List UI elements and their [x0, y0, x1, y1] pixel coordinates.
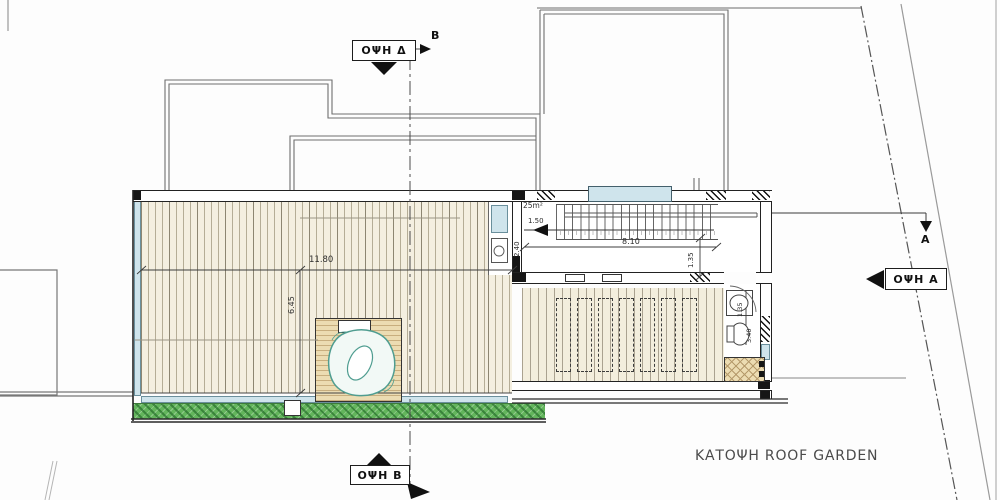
- section-line-a: [772, 213, 932, 232]
- roof-garden-floor-plan: ΟΨΗ Δ ΟΨΗ B ΟΨΗ A B A 11.80 6.45 25m² 1.…: [0, 0, 1000, 500]
- dim-deck-width: 11.80: [309, 256, 333, 265]
- view-a-triangle: [866, 270, 884, 289]
- view-label-bottom-text: ΟΨΗ B: [357, 469, 402, 482]
- stair-walkline: [524, 213, 757, 236]
- view-label-top: ΟΨΗ Δ: [352, 40, 416, 61]
- dim-wc-length: 3.40: [746, 329, 753, 343]
- dim-stair-width: 2.40: [514, 241, 521, 257]
- dimension-lines: [137, 234, 746, 397]
- dim-stair-area: 25m²: [523, 202, 543, 210]
- view-label-right-text: ΟΨΗ A: [893, 273, 938, 286]
- drawing-title: ΚΑΤΟΨΗ ROOF GARDEN: [695, 448, 878, 464]
- view-label-bottom: ΟΨΗ B: [350, 465, 410, 485]
- dim-stair-landing: 1.35: [688, 252, 695, 268]
- plan-linework: [0, 0, 1000, 500]
- dim-deck-depth: 6.45: [288, 296, 296, 314]
- property-boundary-dashdot: [861, 6, 957, 500]
- road-edge-line: [901, 4, 990, 500]
- dim-wc-width: 1.35: [737, 303, 744, 317]
- counter-sink: [494, 246, 504, 256]
- section-marker-b-label: B: [431, 30, 439, 41]
- jacuzzi-tub: [329, 330, 395, 396]
- neighbour-roof-outlines: [165, 10, 728, 190]
- deck-borders: [131, 190, 788, 422]
- view-d-triangle: [371, 62, 397, 75]
- dim-stair-run: 8.10: [622, 238, 640, 246]
- dim-stair-entry: 1.50: [528, 218, 544, 225]
- section-line-b: [407, 44, 431, 499]
- section-marker-a-label: A: [921, 234, 930, 245]
- left-neighbour-outline: [0, 270, 133, 396]
- view-label-right: ΟΨΗ A: [885, 268, 947, 290]
- view-label-top-text: ΟΨΗ Δ: [361, 44, 406, 57]
- bottomleft-edge-line: [45, 461, 57, 500]
